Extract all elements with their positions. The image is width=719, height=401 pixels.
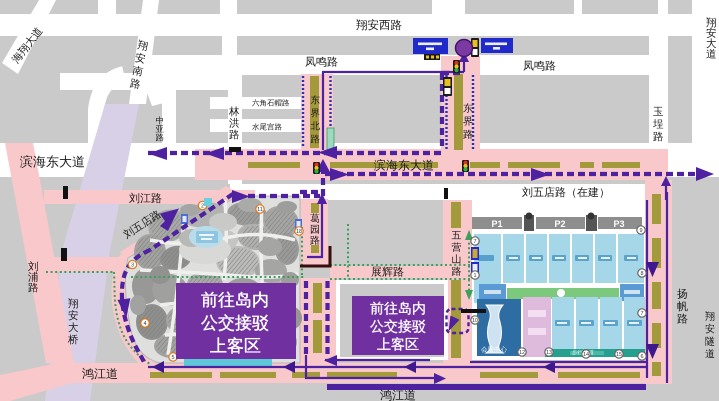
svg-text:7: 7 bbox=[640, 311, 643, 317]
svg-text:6: 6 bbox=[640, 354, 643, 360]
svg-text:15: 15 bbox=[616, 352, 622, 358]
svg-text:12: 12 bbox=[519, 350, 525, 356]
svg-text:P3: P3 bbox=[613, 219, 624, 229]
svg-text:7: 7 bbox=[473, 239, 476, 245]
svg-text:13: 13 bbox=[546, 350, 552, 356]
svg-text:8: 8 bbox=[640, 271, 643, 277]
svg-text:11: 11 bbox=[257, 207, 263, 213]
svg-text:10: 10 bbox=[472, 318, 478, 324]
svg-text:9: 9 bbox=[639, 228, 642, 234]
svg-text:1: 1 bbox=[473, 273, 476, 279]
svg-text:3: 3 bbox=[131, 263, 134, 269]
svg-text:P2: P2 bbox=[554, 219, 565, 229]
svg-text:18: 18 bbox=[296, 229, 302, 235]
svg-text:5: 5 bbox=[171, 355, 174, 361]
svg-text:P1: P1 bbox=[491, 219, 502, 229]
svg-text:4: 4 bbox=[143, 321, 146, 327]
svg-text:2: 2 bbox=[201, 204, 204, 210]
svg-text:14: 14 bbox=[583, 352, 589, 358]
